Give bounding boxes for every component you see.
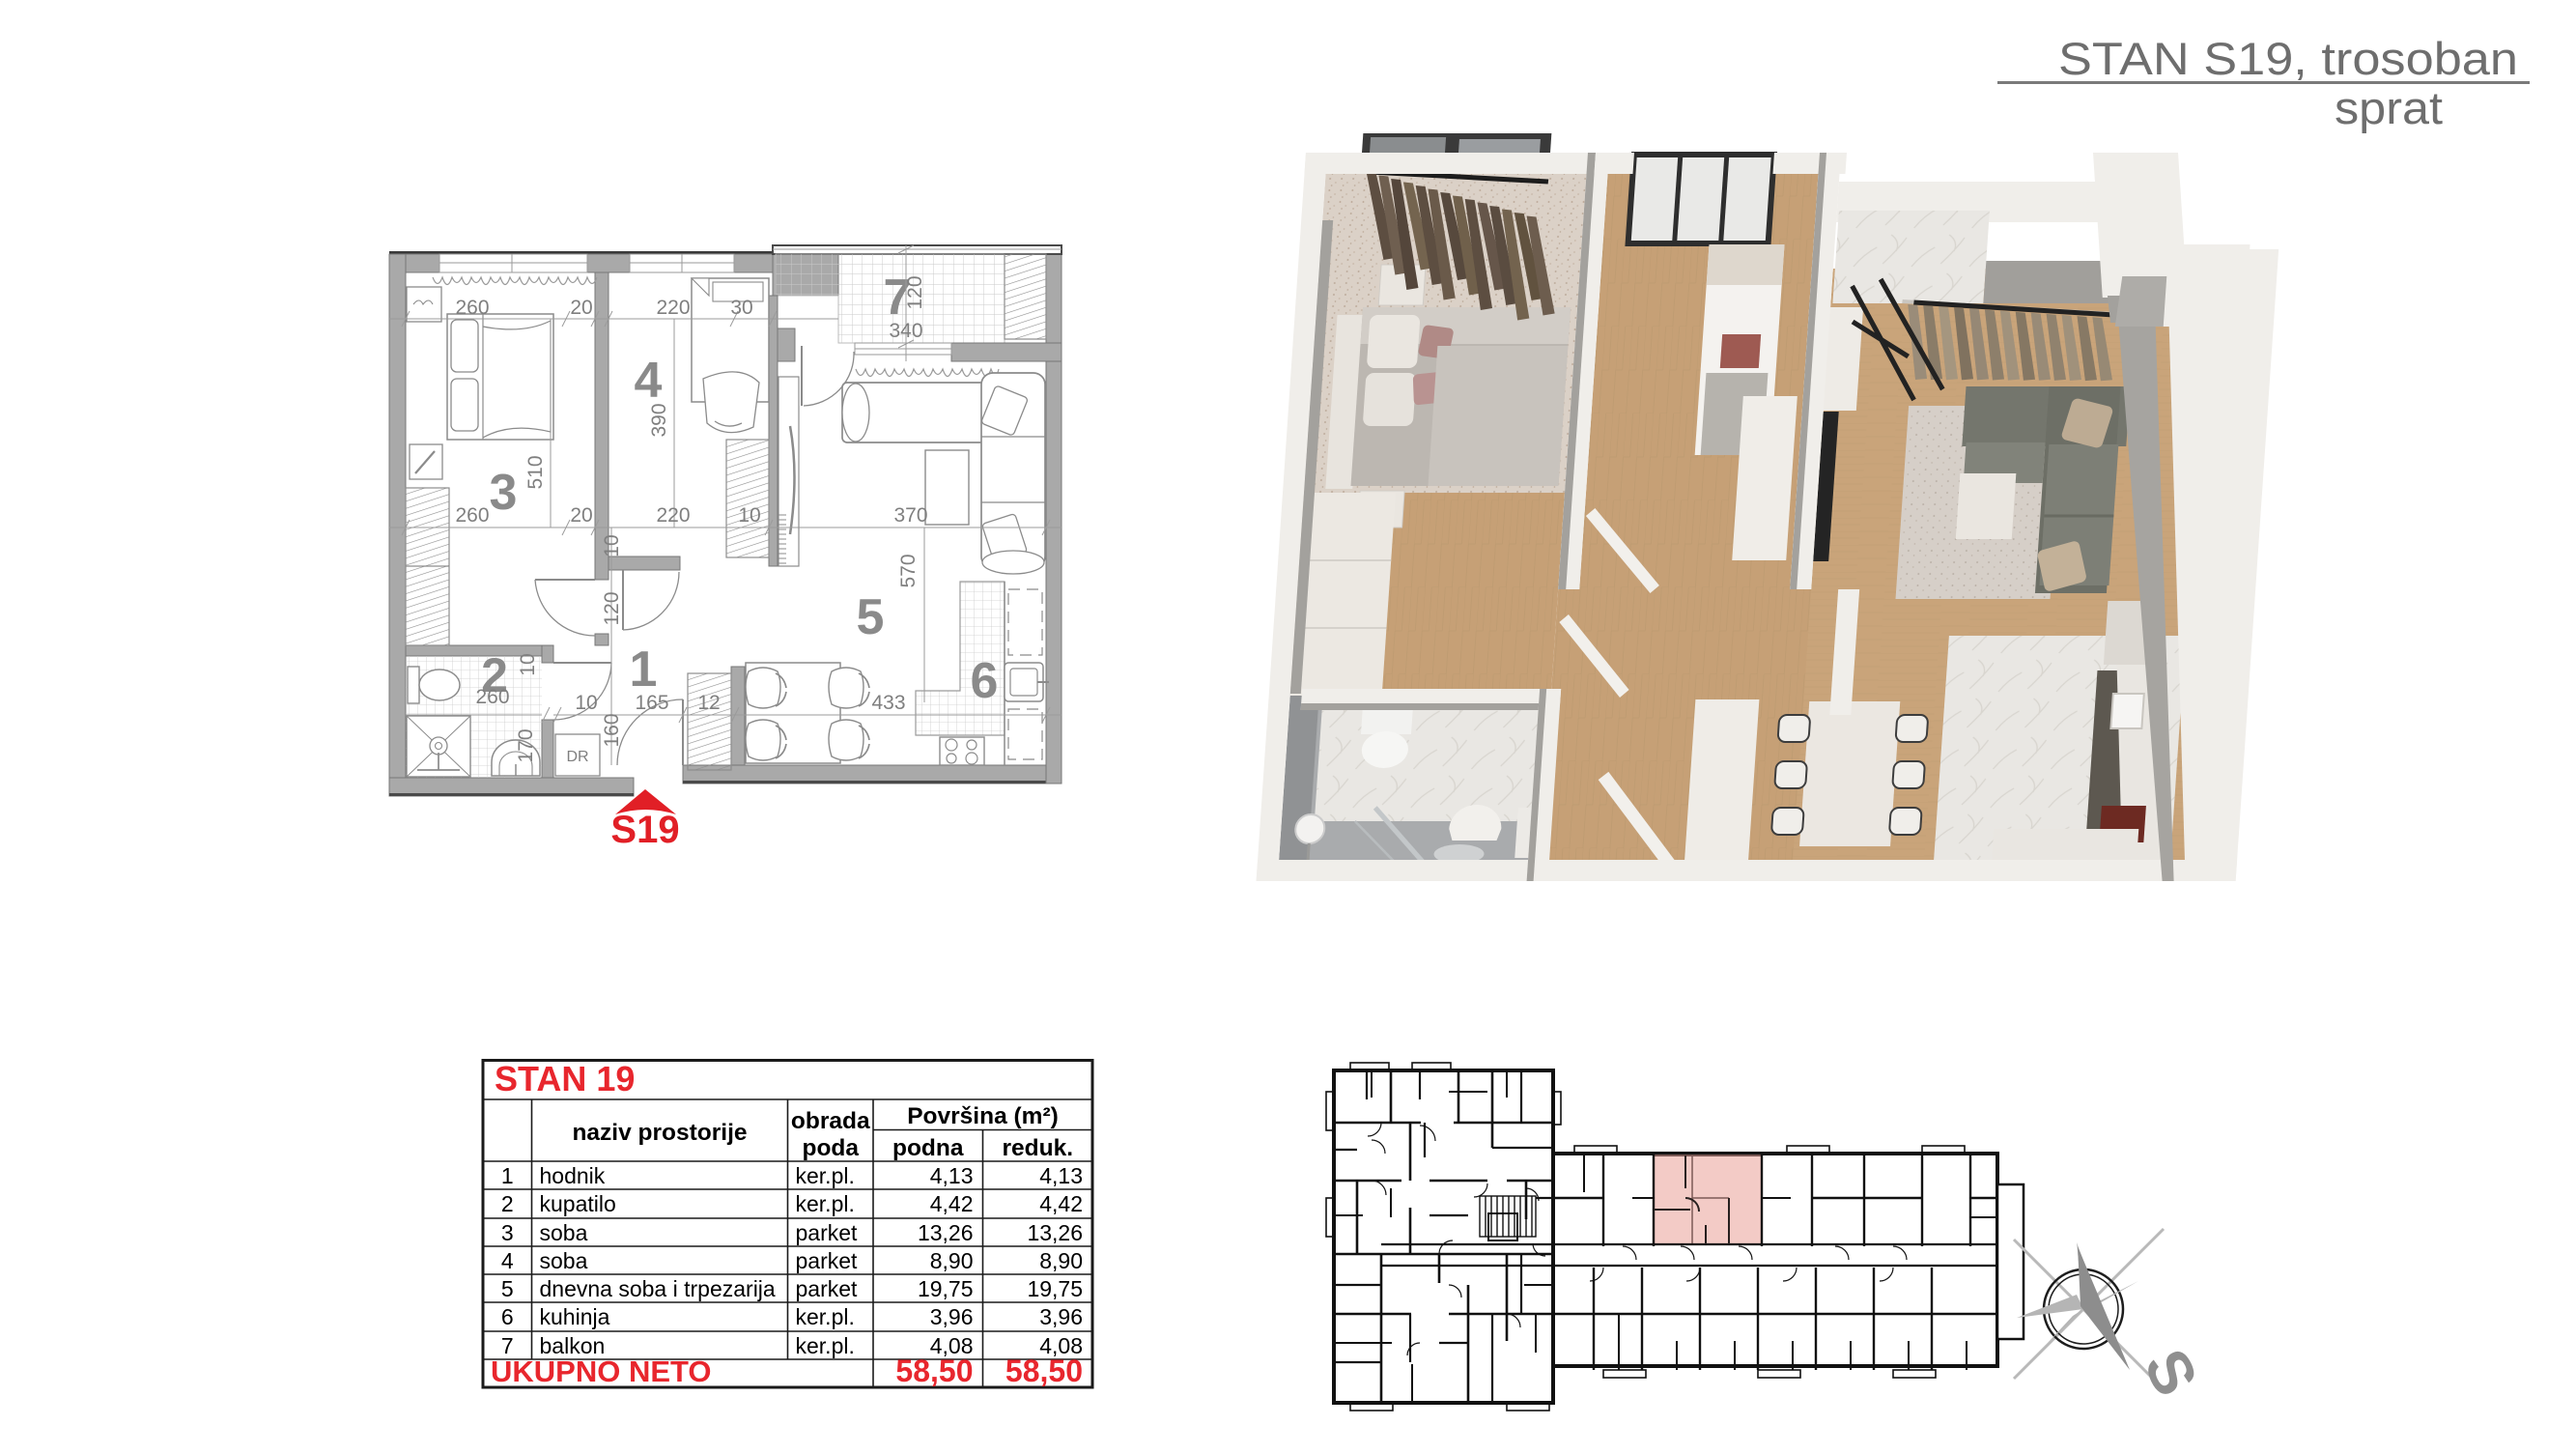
svg-text:DR: DR — [566, 749, 588, 765]
svg-text:4: 4 — [635, 353, 663, 409]
svg-text:naziv prostorije: naziv prostorije — [572, 1120, 747, 1146]
svg-text:ker.pl.: ker.pl. — [796, 1333, 855, 1358]
svg-text:220: 220 — [656, 297, 690, 319]
svg-text:120: 120 — [904, 275, 926, 309]
svg-text:260: 260 — [475, 686, 509, 708]
svg-text:165: 165 — [635, 692, 668, 714]
svg-text:6: 6 — [971, 653, 999, 709]
svg-text:3,96: 3,96 — [930, 1304, 974, 1329]
svg-text:4: 4 — [501, 1248, 514, 1273]
svg-text:160: 160 — [601, 713, 623, 747]
svg-text:poda: poda — [802, 1135, 859, 1161]
svg-text:obrada: obrada — [791, 1108, 870, 1134]
svg-text:hodnik: hodnik — [540, 1163, 606, 1188]
svg-text:4,42: 4,42 — [930, 1191, 974, 1216]
svg-text:260: 260 — [455, 297, 489, 319]
svg-text:podna: podna — [892, 1135, 964, 1161]
svg-text:parket: parket — [796, 1248, 859, 1273]
svg-text:390: 390 — [648, 403, 670, 437]
svg-text:sprat: sprat — [2335, 82, 2443, 133]
svg-text:370: 370 — [893, 504, 927, 527]
svg-text:13,26: 13,26 — [1027, 1220, 1083, 1245]
svg-text:570: 570 — [897, 554, 920, 587]
svg-text:13,26: 13,26 — [918, 1220, 974, 1245]
svg-text:STAN 19: STAN 19 — [495, 1059, 635, 1098]
svg-text:19,75: 19,75 — [918, 1276, 974, 1301]
svg-text:8,90: 8,90 — [1039, 1248, 1083, 1273]
svg-text:soba: soba — [540, 1220, 588, 1245]
svg-text:10: 10 — [575, 692, 597, 714]
svg-text:S19: S19 — [610, 809, 679, 851]
svg-text:10: 10 — [738, 504, 760, 527]
svg-text:parket: parket — [796, 1220, 859, 1245]
svg-text:260: 260 — [455, 504, 489, 527]
svg-text:dnevna soba i trpezarija: dnevna soba i trpezarija — [540, 1276, 776, 1301]
svg-text:UKUPNO NETO: UKUPNO NETO — [491, 1354, 712, 1388]
svg-text:parket: parket — [796, 1276, 859, 1301]
svg-text:ker.pl.: ker.pl. — [796, 1304, 855, 1329]
svg-text:19,75: 19,75 — [1027, 1276, 1083, 1301]
svg-text:340: 340 — [889, 320, 922, 342]
svg-text:10: 10 — [517, 653, 539, 675]
svg-text:170: 170 — [515, 728, 537, 762]
svg-text:4,13: 4,13 — [930, 1163, 974, 1188]
svg-text:12: 12 — [697, 692, 720, 714]
svg-text:4,13: 4,13 — [1039, 1163, 1083, 1188]
svg-text:Površina (m²): Površina (m²) — [907, 1103, 1059, 1129]
svg-text:20: 20 — [570, 504, 592, 527]
svg-text:reduk.: reduk. — [1002, 1135, 1073, 1161]
svg-text:kuhinja: kuhinja — [540, 1304, 610, 1329]
svg-text:3: 3 — [501, 1220, 514, 1245]
svg-text:ker.pl.: ker.pl. — [796, 1163, 855, 1188]
svg-text:4,42: 4,42 — [1039, 1191, 1083, 1216]
svg-text:3: 3 — [490, 465, 518, 521]
svg-text:ker.pl.: ker.pl. — [796, 1191, 855, 1216]
svg-text:kupatilo: kupatilo — [540, 1191, 616, 1216]
svg-text:1: 1 — [630, 641, 658, 698]
svg-text:2: 2 — [501, 1191, 514, 1216]
svg-text:6: 6 — [501, 1304, 514, 1329]
svg-text:soba: soba — [540, 1248, 588, 1273]
svg-text:1: 1 — [501, 1163, 514, 1188]
svg-text:3,96: 3,96 — [1039, 1304, 1083, 1329]
svg-text:STAN S19, trosoban: STAN S19, trosoban — [2058, 33, 2518, 84]
svg-text:58,50: 58,50 — [1005, 1354, 1083, 1388]
svg-text:510: 510 — [524, 455, 547, 489]
svg-text:30: 30 — [730, 297, 752, 319]
svg-text:120: 120 — [601, 591, 623, 625]
svg-text:10: 10 — [601, 534, 623, 556]
svg-text:5: 5 — [501, 1276, 514, 1301]
svg-text:220: 220 — [656, 504, 690, 527]
svg-text:433: 433 — [871, 692, 905, 714]
svg-text:8,90: 8,90 — [930, 1248, 974, 1273]
svg-text:20: 20 — [570, 297, 592, 319]
svg-text:5: 5 — [857, 589, 885, 645]
svg-text:58,50: 58,50 — [895, 1354, 973, 1388]
